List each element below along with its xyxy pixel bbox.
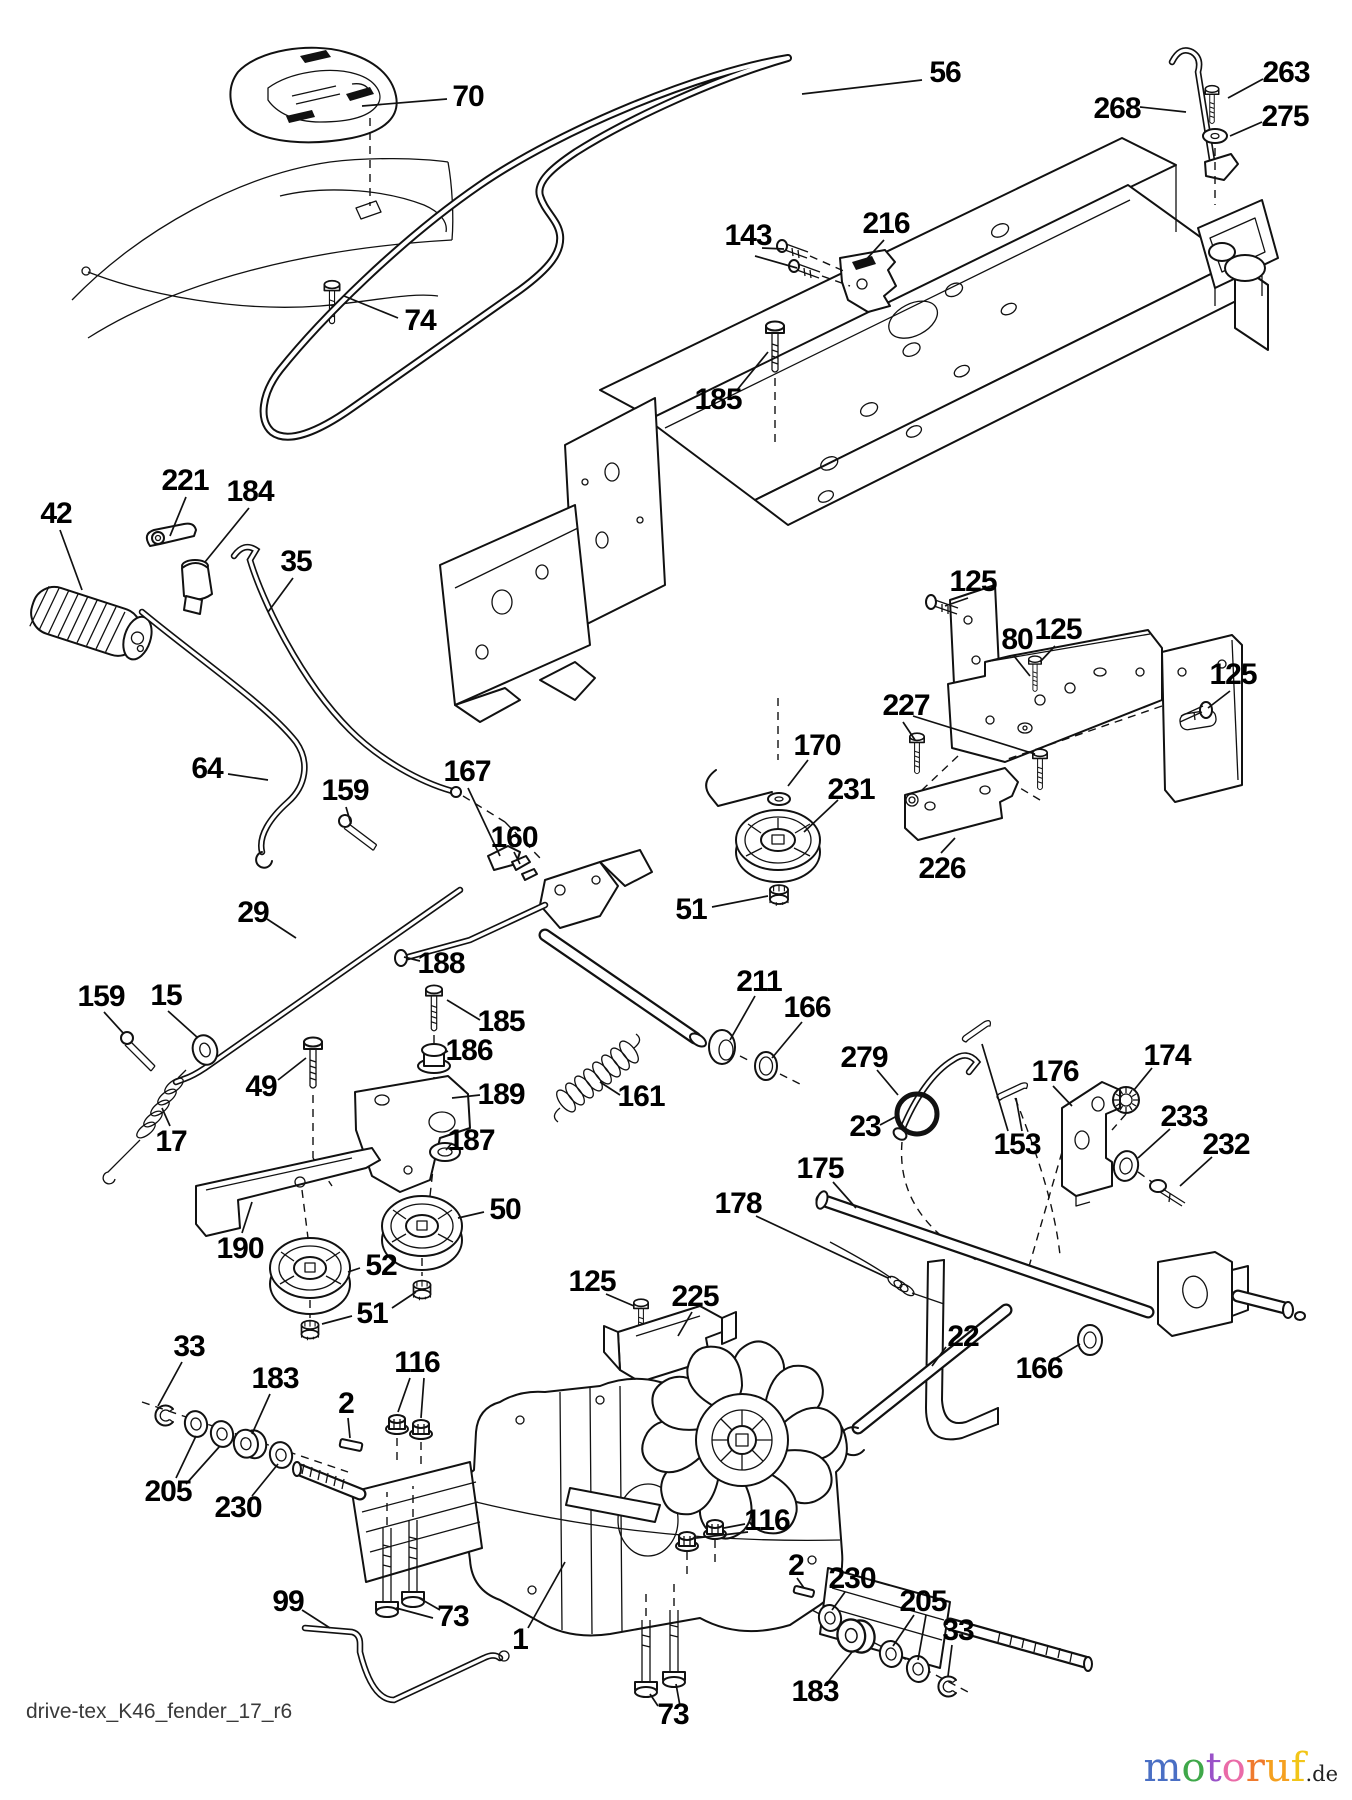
part-label-51: 51 bbox=[675, 893, 706, 927]
part-label-275: 275 bbox=[1261, 100, 1308, 134]
logo-letter: t bbox=[1206, 1745, 1222, 1791]
part-label-233: 233 bbox=[1160, 1100, 1207, 1134]
logo-letter: o bbox=[1222, 1745, 1246, 1791]
rod-64-art bbox=[142, 612, 304, 868]
part-label-176: 176 bbox=[1031, 1055, 1078, 1089]
part-label-125: 125 bbox=[1034, 613, 1081, 647]
part-label-33: 33 bbox=[942, 1614, 973, 1648]
plate-80-art bbox=[926, 585, 1162, 762]
part-label-186: 186 bbox=[445, 1034, 492, 1068]
part-label-183: 183 bbox=[251, 1362, 298, 1396]
part-label-225: 225 bbox=[671, 1280, 718, 1314]
part-label-190: 190 bbox=[216, 1232, 263, 1266]
axle-stack-left-art bbox=[142, 1402, 432, 1472]
fender-cover-art bbox=[230, 48, 396, 206]
part-label-187: 187 bbox=[447, 1124, 494, 1158]
part-label-170: 170 bbox=[793, 729, 840, 763]
part-label-232: 232 bbox=[1202, 1128, 1249, 1162]
part-label-73: 73 bbox=[657, 1698, 688, 1732]
part-label-70: 70 bbox=[452, 80, 483, 114]
motoruf-logo[interactable]: motoruf.de bbox=[1144, 1748, 1338, 1788]
pulley-52-art bbox=[270, 1238, 350, 1340]
part-label-51: 51 bbox=[356, 1297, 387, 1331]
part-label-263: 263 bbox=[1262, 56, 1309, 90]
part-label-231: 231 bbox=[827, 773, 874, 807]
part-label-185: 185 bbox=[694, 383, 741, 417]
part-label-42: 42 bbox=[40, 497, 71, 531]
part-label-116: 116 bbox=[744, 1504, 789, 1538]
part-label-189: 189 bbox=[477, 1078, 524, 1112]
logo-letter: m bbox=[1144, 1745, 1182, 1791]
logo-letter: r bbox=[1246, 1745, 1265, 1791]
part-label-184: 184 bbox=[226, 475, 273, 509]
grip-42-art bbox=[25, 581, 157, 665]
part-label-188: 188 bbox=[417, 947, 464, 981]
part-label-175: 175 bbox=[796, 1152, 843, 1186]
part-label-49: 49 bbox=[245, 1070, 276, 1104]
part-label-17: 17 bbox=[155, 1125, 186, 1159]
part-label-2: 2 bbox=[788, 1549, 804, 1583]
part-label-230: 230 bbox=[214, 1491, 261, 1525]
part-label-2: 2 bbox=[338, 1387, 354, 1421]
part-label-50: 50 bbox=[489, 1193, 520, 1227]
part-label-29: 29 bbox=[237, 896, 268, 930]
shaft-175-art bbox=[814, 1190, 1148, 1312]
part-label-226: 226 bbox=[918, 852, 965, 886]
bolts-143 bbox=[777, 240, 820, 278]
motoruf-logo-letters: motoruf bbox=[1144, 1745, 1306, 1791]
part-label-143: 143 bbox=[724, 219, 771, 253]
part-label-211: 211 bbox=[736, 965, 781, 999]
part-label-230: 230 bbox=[828, 1562, 875, 1596]
logo-letter: f bbox=[1291, 1745, 1306, 1791]
part-label-64: 64 bbox=[191, 752, 222, 786]
tube-211-art bbox=[545, 935, 800, 1084]
cap-184-art bbox=[182, 560, 212, 614]
drawing-code: drive-tex_K46_fender_17_r6 bbox=[26, 1700, 292, 1724]
part-label-166: 166 bbox=[1015, 1352, 1062, 1386]
part-label-80: 80 bbox=[1001, 623, 1032, 657]
part-label-160: 160 bbox=[490, 821, 537, 855]
part-label-125: 125 bbox=[949, 565, 996, 599]
guard-190-art bbox=[196, 1148, 380, 1238]
part-label-15: 15 bbox=[150, 979, 181, 1013]
part-label-74: 74 bbox=[404, 304, 435, 338]
part-label-159: 159 bbox=[321, 774, 368, 808]
rod-99-art bbox=[305, 1628, 509, 1700]
pin-159b-art bbox=[121, 1032, 155, 1071]
part-label-221: 221 bbox=[161, 464, 208, 498]
part-label-268: 268 bbox=[1093, 92, 1140, 126]
part-label-159: 159 bbox=[77, 980, 124, 1014]
logo-letter: o bbox=[1181, 1745, 1205, 1791]
part-label-52: 52 bbox=[365, 1249, 396, 1283]
logo-letter: u bbox=[1265, 1745, 1291, 1791]
part-label-205: 205 bbox=[144, 1475, 191, 1509]
part-label-1: 1 bbox=[512, 1623, 528, 1657]
part-label-22: 22 bbox=[947, 1320, 978, 1354]
part-label-279: 279 bbox=[840, 1041, 887, 1075]
part-label-73: 73 bbox=[437, 1600, 468, 1634]
bolt-49-art bbox=[304, 1038, 322, 1089]
part-label-125: 125 bbox=[1209, 658, 1256, 692]
part-label-216: 216 bbox=[862, 207, 909, 241]
rod-268-art bbox=[1172, 50, 1238, 205]
part-label-161: 161 bbox=[617, 1080, 664, 1114]
part-label-167: 167 bbox=[443, 755, 490, 789]
part-label-56: 56 bbox=[929, 56, 960, 90]
part-label-35: 35 bbox=[280, 545, 311, 579]
part-label-205: 205 bbox=[899, 1585, 946, 1619]
part-label-33: 33 bbox=[173, 1330, 204, 1364]
part-label-166: 166 bbox=[783, 991, 830, 1025]
part-label-23: 23 bbox=[849, 1110, 880, 1144]
rod-29-art bbox=[176, 890, 460, 1082]
part-label-116: 116 bbox=[394, 1346, 439, 1380]
part-label-178: 178 bbox=[714, 1187, 761, 1221]
part-label-183: 183 bbox=[791, 1675, 838, 1709]
part-label-227: 227 bbox=[882, 689, 929, 723]
parts-diagram-page: 7056263268275143216741852211844235125801… bbox=[0, 0, 1352, 1800]
logo-suffix: .de bbox=[1305, 1762, 1338, 1786]
part-label-99: 99 bbox=[272, 1585, 303, 1619]
part-label-153: 153 bbox=[993, 1128, 1040, 1162]
part-label-174: 174 bbox=[1143, 1039, 1190, 1073]
part-label-125: 125 bbox=[568, 1265, 615, 1299]
